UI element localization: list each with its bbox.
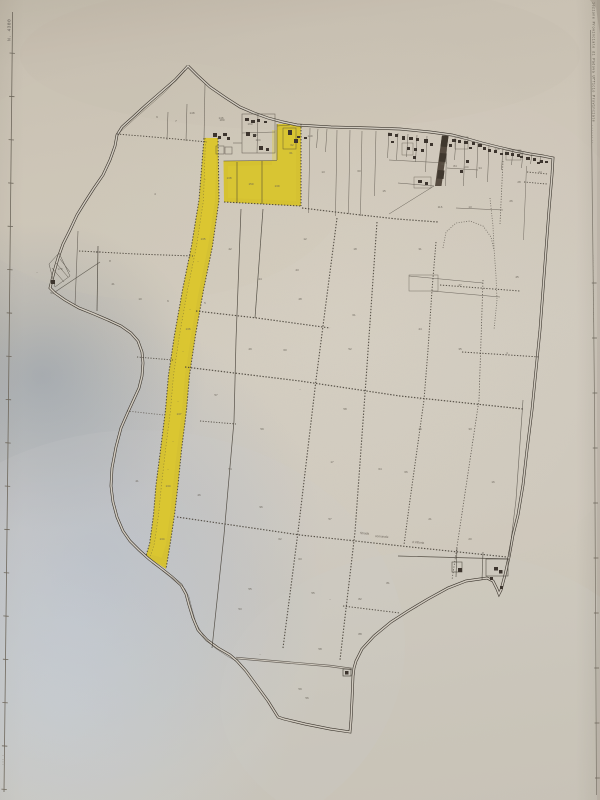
svg-text:26: 26	[509, 199, 513, 203]
svg-text:21: 21	[428, 517, 432, 521]
svg-text:62: 62	[278, 537, 282, 541]
svg-text:Strada: Strada	[360, 531, 370, 536]
svg-text:96: 96	[259, 505, 263, 509]
svg-text:20: 20	[468, 537, 472, 541]
svg-text:10: 10	[138, 297, 142, 301]
svg-text:59: 59	[298, 687, 302, 691]
svg-text:116: 116	[438, 205, 443, 209]
svg-text:58: 58	[318, 647, 322, 651]
svg-text:134: 134	[165, 484, 170, 488]
svg-text:35: 35	[458, 347, 462, 351]
svg-text:57: 57	[328, 517, 332, 521]
svg-text:60: 60	[283, 348, 287, 352]
svg-text:41: 41	[135, 479, 139, 483]
svg-text:62: 62	[290, 143, 294, 147]
svg-text:55: 55	[248, 587, 252, 591]
svg-text:147: 147	[95, 250, 100, 254]
svg-text:12: 12	[303, 237, 307, 241]
svg-text:149: 149	[307, 134, 312, 138]
svg-text:64: 64	[441, 162, 445, 166]
svg-text:63: 63	[298, 557, 302, 561]
svg-text:81: 81	[386, 581, 390, 585]
svg-text:55: 55	[311, 591, 315, 595]
svg-text:53: 53	[50, 291, 54, 295]
svg-text:66: 66	[404, 470, 408, 474]
svg-text:16: 16	[491, 480, 495, 484]
svg-text:134: 134	[159, 537, 164, 541]
svg-text:17: 17	[330, 460, 334, 464]
svg-text:15: 15	[382, 189, 386, 193]
svg-text:41: 41	[111, 282, 115, 286]
svg-text:61: 61	[352, 313, 356, 317]
svg-text:104: 104	[463, 165, 468, 169]
svg-text:28: 28	[517, 180, 521, 184]
svg-text:44: 44	[258, 277, 262, 281]
svg-text:42: 42	[228, 247, 232, 251]
svg-text:148: 148	[189, 111, 194, 115]
svg-text:56: 56	[305, 696, 309, 700]
svg-text:139: 139	[274, 184, 279, 188]
svg-text:||| |: ||| |	[1, 754, 5, 765]
svg-text:178: 178	[57, 267, 62, 271]
svg-text:59: 59	[260, 427, 264, 431]
svg-text:52: 52	[348, 347, 352, 351]
svg-text:N. 4300: N. 4300	[7, 19, 13, 41]
svg-text:53: 53	[238, 607, 242, 611]
svg-text:125: 125	[494, 147, 499, 151]
svg-text:58: 58	[343, 407, 347, 411]
svg-text:104: 104	[255, 138, 260, 142]
svg-text:82: 82	[358, 597, 362, 601]
svg-text:54: 54	[228, 467, 232, 471]
svg-text:33: 33	[468, 427, 472, 431]
svg-text:34: 34	[478, 166, 482, 170]
svg-text:47: 47	[458, 283, 462, 287]
svg-text:135: 135	[200, 237, 205, 241]
svg-text:49: 49	[248, 347, 252, 351]
svg-text:150: 150	[248, 182, 253, 186]
svg-text:64: 64	[378, 467, 382, 471]
svg-text:84: 84	[453, 164, 457, 168]
svg-text:57: 57	[214, 393, 218, 397]
svg-text:.... . .. ... . ... .. . .: .... . .. ... . ... .. . . .. ..	[592, 255, 595, 322]
svg-text:163: 163	[252, 133, 257, 137]
svg-text:18: 18	[353, 247, 357, 251]
svg-text:26: 26	[517, 150, 521, 154]
svg-text:45: 45	[515, 275, 519, 279]
svg-text:13: 13	[468, 205, 472, 209]
svg-text:44: 44	[418, 327, 422, 331]
svg-text:138: 138	[226, 176, 231, 180]
svg-text:160: 160	[247, 122, 252, 126]
svg-text:24: 24	[538, 170, 542, 174]
svg-text:61: 61	[289, 151, 293, 155]
svg-text:60: 60	[357, 169, 361, 173]
svg-text:iezione Provinciale di Padova: iezione Provinciale di Padova Ufficio Pr…	[591, 2, 596, 144]
svg-text:137: 137	[176, 412, 181, 416]
svg-text:46: 46	[418, 427, 422, 431]
svg-text:31: 31	[418, 247, 422, 251]
svg-text:46: 46	[197, 493, 201, 497]
svg-text:88: 88	[358, 632, 362, 636]
svg-text:146: 146	[218, 116, 223, 120]
svg-text:48: 48	[298, 297, 302, 301]
svg-text:136: 136	[185, 327, 190, 331]
svg-text:13: 13	[321, 170, 325, 174]
svg-text:43: 43	[295, 268, 299, 272]
